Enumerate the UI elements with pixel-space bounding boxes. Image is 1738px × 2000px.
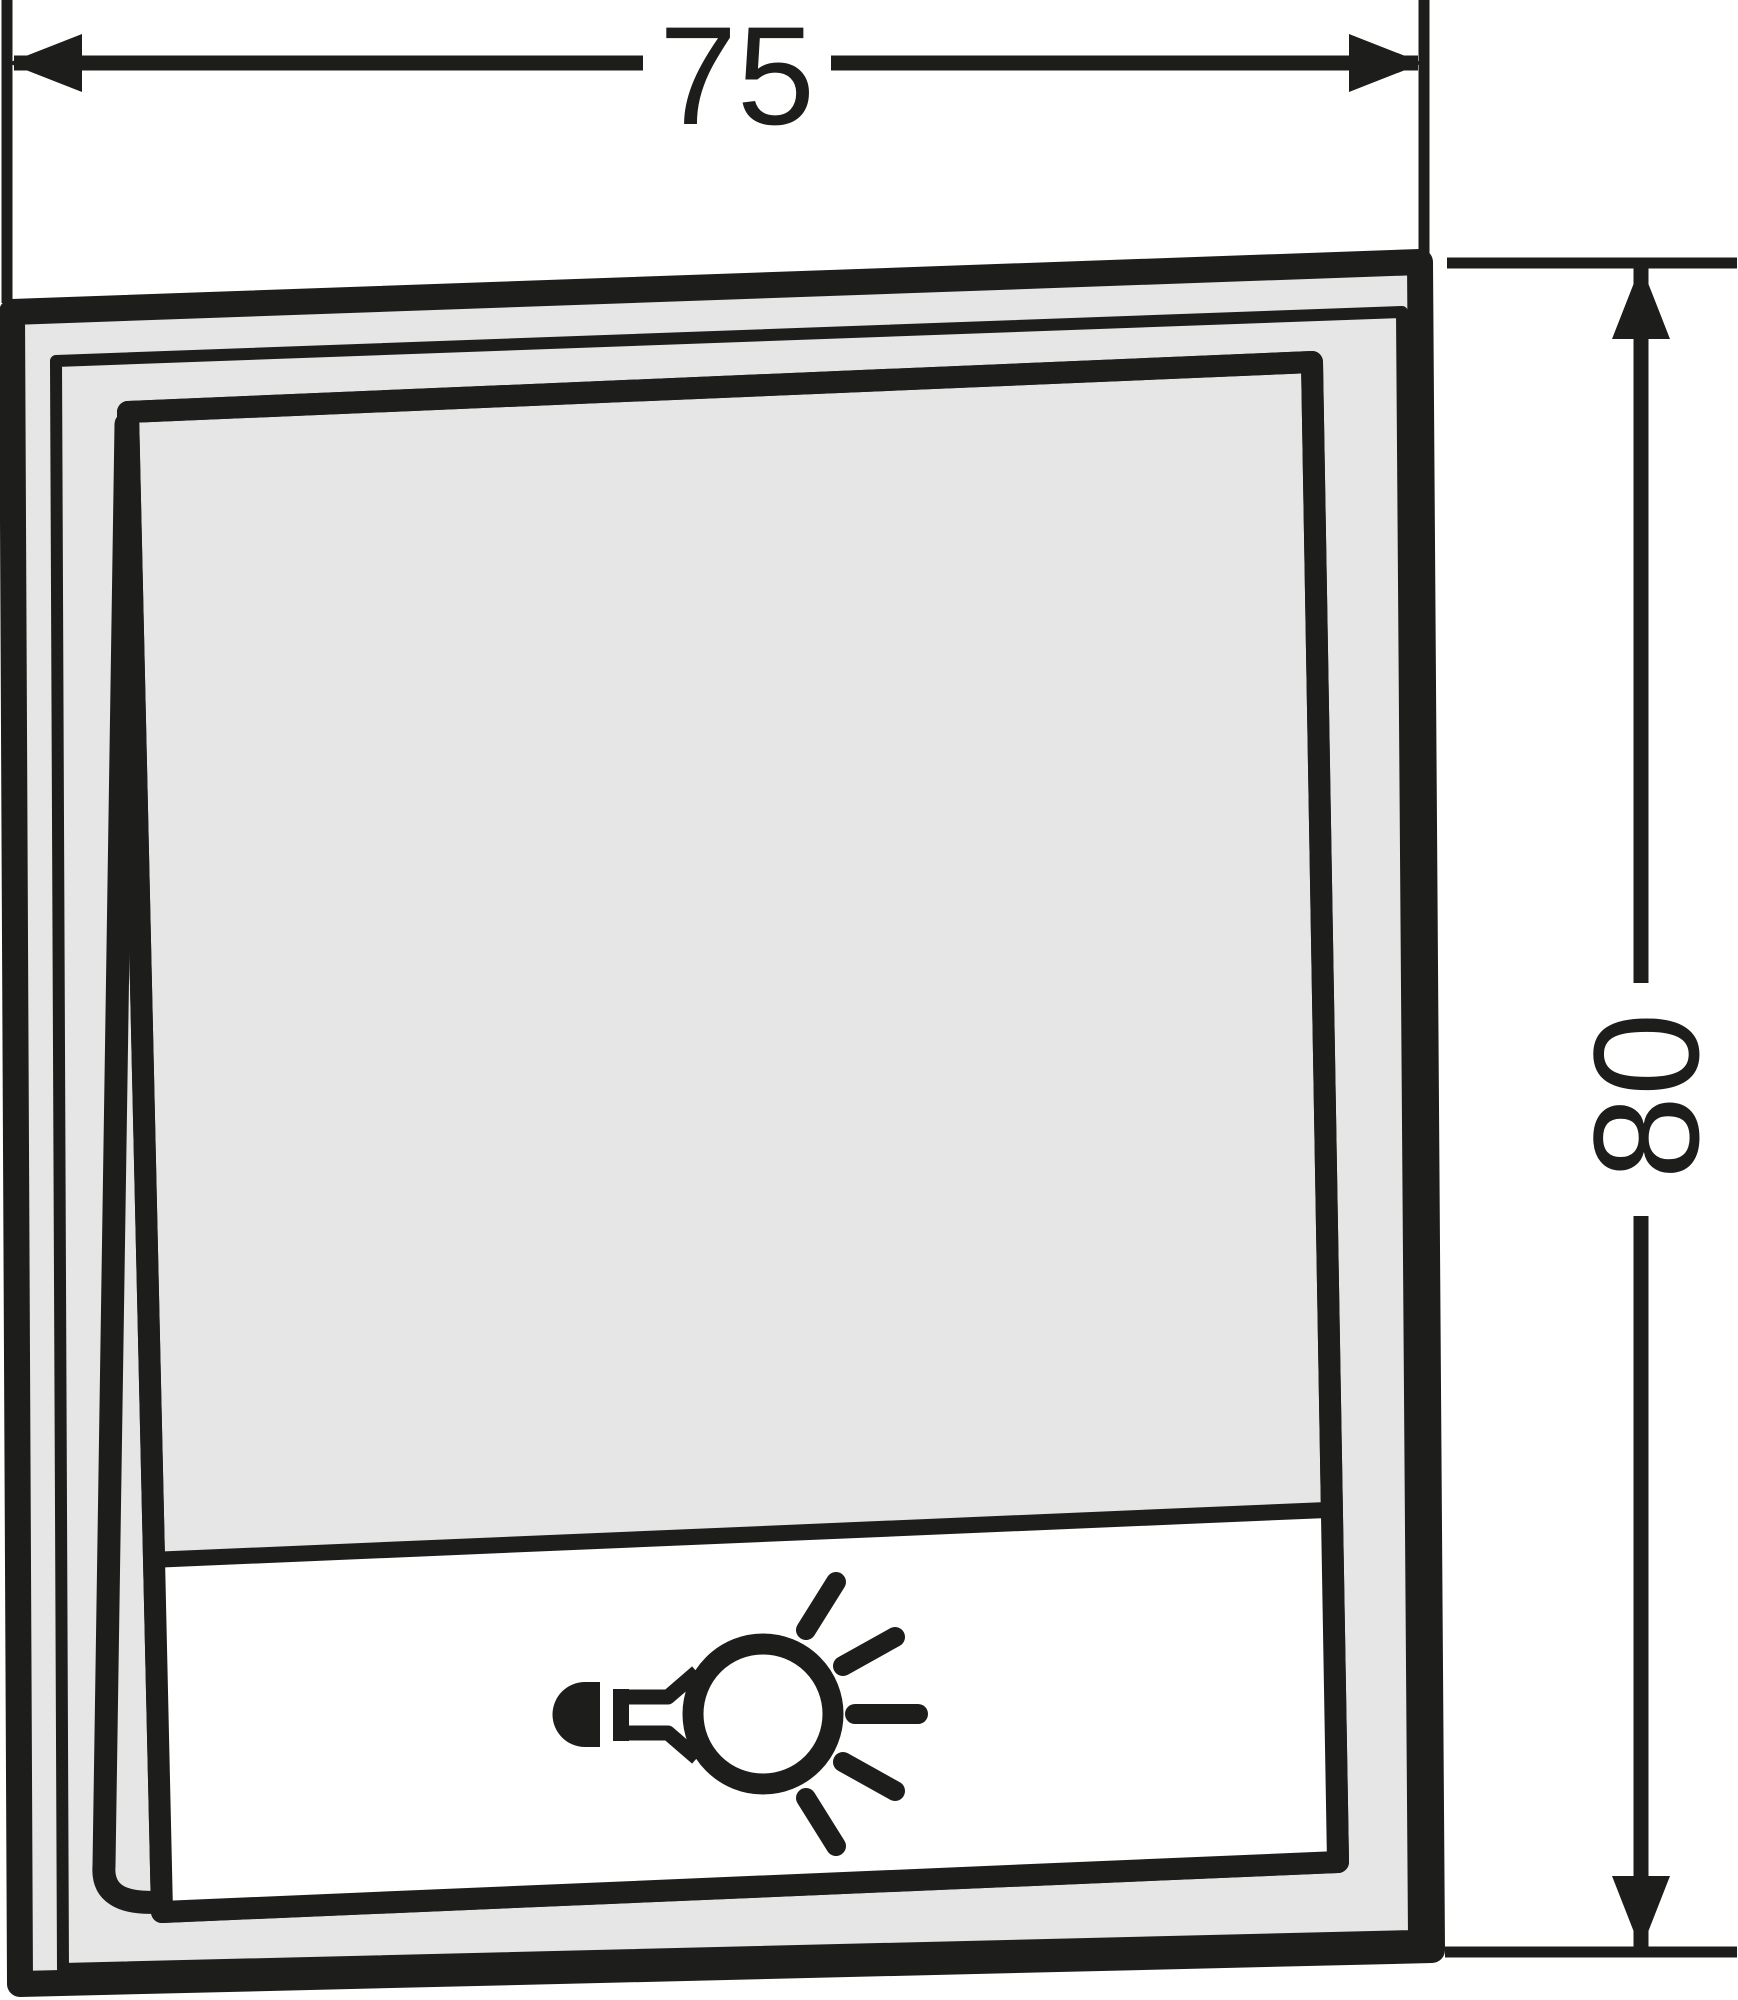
height-dimension-label: 80 [1562, 1013, 1730, 1180]
dimension-drawing-page: 75 80 [0, 0, 1738, 2000]
switch-dimension-drawing: 75 80 [0, 0, 1738, 2000]
label-field [150, 1510, 1337, 1906]
width-dimension-label: 75 [659, 0, 815, 154]
switch-device [12, 262, 1432, 1984]
